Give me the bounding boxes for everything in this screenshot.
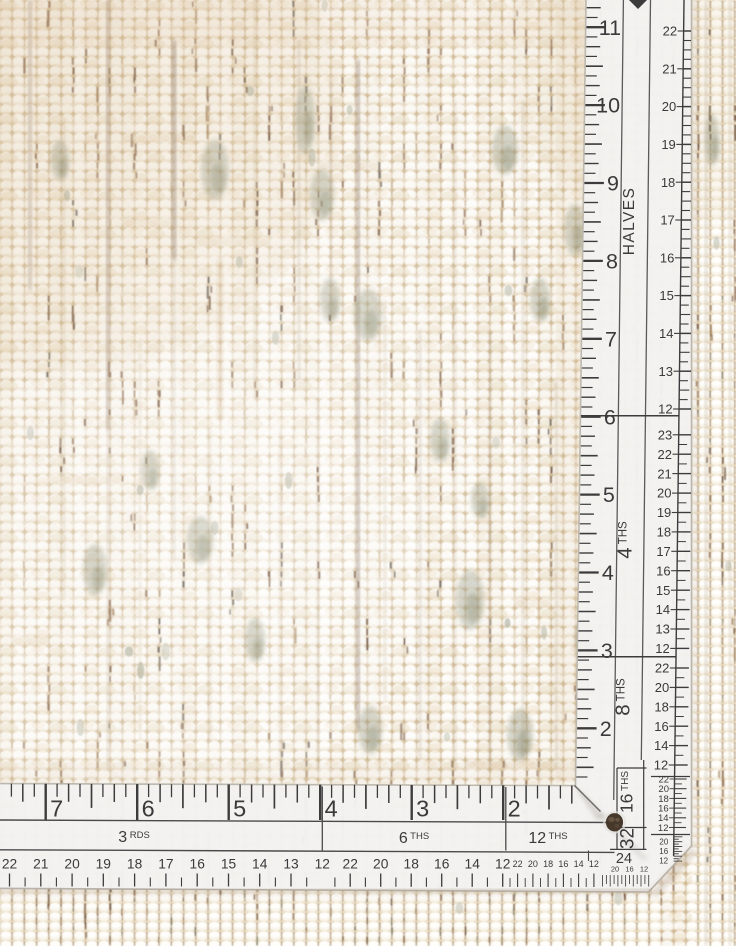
svg-text:6: 6 xyxy=(142,796,155,822)
svg-text:32: 32 xyxy=(618,828,639,849)
svg-text:HALVES: HALVES xyxy=(621,187,638,255)
svg-text:22: 22 xyxy=(663,24,677,39)
svg-text:18: 18 xyxy=(661,175,675,190)
svg-text:4: 4 xyxy=(602,561,614,585)
svg-text:18: 18 xyxy=(543,859,553,869)
svg-text:22: 22 xyxy=(655,661,669,676)
svg-text:14: 14 xyxy=(656,602,670,617)
svg-text:20: 20 xyxy=(528,859,538,869)
svg-text:20: 20 xyxy=(655,680,669,695)
svg-text:15: 15 xyxy=(221,856,237,871)
svg-text:19: 19 xyxy=(661,137,675,152)
svg-text:12: 12 xyxy=(655,641,669,656)
svg-text:23: 23 xyxy=(658,427,672,442)
svg-text:22: 22 xyxy=(343,856,358,871)
svg-text:22: 22 xyxy=(658,447,672,462)
svg-text:21: 21 xyxy=(33,856,48,871)
svg-text:17: 17 xyxy=(158,856,173,871)
svg-text:18: 18 xyxy=(654,699,668,714)
svg-text:12: 12 xyxy=(495,856,510,871)
svg-text:22: 22 xyxy=(513,859,523,869)
svg-text:11: 11 xyxy=(599,16,621,40)
svg-text:17: 17 xyxy=(660,213,674,228)
svg-text:4: 4 xyxy=(325,796,338,822)
svg-text:16: 16 xyxy=(190,856,206,871)
svg-text:20: 20 xyxy=(373,856,389,871)
svg-text:7: 7 xyxy=(50,796,63,822)
svg-text:15: 15 xyxy=(656,583,670,598)
svg-text:20: 20 xyxy=(657,486,671,501)
svg-text:8: 8 xyxy=(606,250,618,274)
svg-text:5: 5 xyxy=(603,483,615,507)
svg-text:16: 16 xyxy=(434,856,450,871)
svg-text:2: 2 xyxy=(508,796,521,822)
svg-text:14: 14 xyxy=(654,738,668,753)
svg-text:16: 16 xyxy=(660,250,674,265)
svg-text:7: 7 xyxy=(605,327,617,351)
svg-text:3: 3 xyxy=(601,639,613,663)
svg-text:19: 19 xyxy=(96,856,112,871)
svg-text:12: 12 xyxy=(589,859,599,869)
svg-text:6: 6 xyxy=(604,405,616,429)
svg-text:14: 14 xyxy=(574,859,584,869)
svg-text:14: 14 xyxy=(659,326,673,341)
svg-text:12: 12 xyxy=(654,758,668,773)
svg-text:12: 12 xyxy=(658,823,669,834)
svg-text:2: 2 xyxy=(600,717,612,741)
svg-text:13: 13 xyxy=(655,622,669,637)
svg-text:17: 17 xyxy=(656,544,670,559)
svg-text:21: 21 xyxy=(662,61,676,76)
svg-text:20: 20 xyxy=(659,837,668,846)
svg-text:16: 16 xyxy=(656,563,670,578)
svg-text:18: 18 xyxy=(127,856,143,871)
svg-text:20: 20 xyxy=(662,99,676,114)
svg-text:12: 12 xyxy=(640,865,648,874)
svg-text:9: 9 xyxy=(607,172,619,196)
svg-text:14: 14 xyxy=(252,856,268,871)
svg-text:21: 21 xyxy=(657,466,671,481)
svg-text:16: 16 xyxy=(625,865,633,874)
svg-text:20: 20 xyxy=(611,865,619,874)
svg-text:12: 12 xyxy=(658,402,672,417)
svg-text:14: 14 xyxy=(465,856,481,871)
svg-text:13: 13 xyxy=(283,856,299,871)
svg-text:12: 12 xyxy=(659,856,668,865)
svg-text:13: 13 xyxy=(659,364,673,379)
svg-text:22: 22 xyxy=(2,856,17,871)
svg-text:10: 10 xyxy=(596,94,620,118)
svg-text:20: 20 xyxy=(64,856,80,871)
svg-text:5: 5 xyxy=(233,796,246,822)
svg-text:12: 12 xyxy=(315,856,330,871)
svg-text:16: 16 xyxy=(558,859,568,869)
svg-text:19: 19 xyxy=(657,505,671,520)
svg-text:16: 16 xyxy=(659,847,668,856)
svg-text:16: 16 xyxy=(654,719,668,734)
svg-text:15: 15 xyxy=(659,288,673,303)
svg-text:3: 3 xyxy=(416,796,429,822)
svg-text:18: 18 xyxy=(657,525,671,540)
svg-text:18: 18 xyxy=(404,856,420,871)
